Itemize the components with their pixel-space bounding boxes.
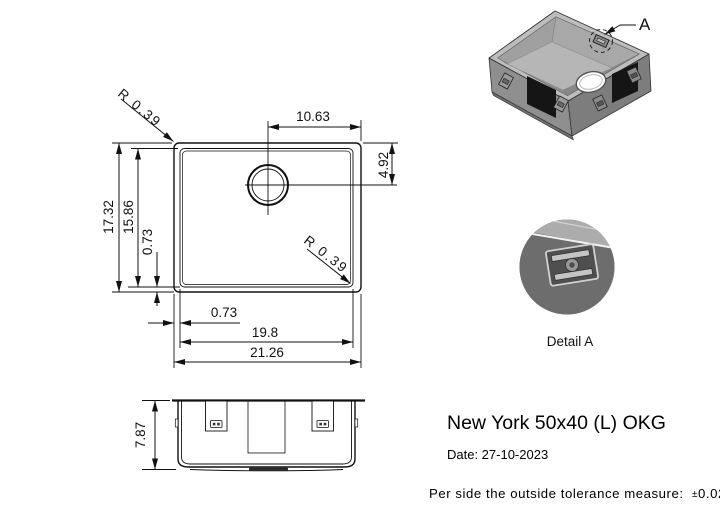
dim-front-height: 7.87 (133, 422, 148, 448)
dim-inner-height: 15.86 (121, 200, 136, 234)
center-pad-outline (248, 401, 285, 453)
iso-view: A (489, 11, 651, 140)
tolerance-label: Per side the outside tolerance measure: (429, 486, 684, 501)
detail-view: Detail A (490, 203, 620, 349)
dim-bottom-offset: 0.73 (140, 229, 155, 255)
detail-marker-label: A (639, 15, 651, 34)
sink-basin-edge (183, 151, 351, 285)
dim-drain-from-right: 10.63 (296, 109, 330, 124)
dim-outer-width: 21.26 (250, 345, 284, 360)
dim-drain-from-top: 4.92 (376, 152, 391, 178)
top-view: 10.63 4.92 17.32 15.86 0.73 0.73 19.8 21… (101, 86, 398, 368)
side-clip-left (175, 419, 178, 427)
front-view: 7.87 (133, 401, 365, 472)
drain-circle (245, 121, 397, 215)
drain-strip (249, 468, 288, 471)
clip-left (206, 401, 228, 431)
title-block: New York 50x40 (L) OKG Date: 27-10-2023 (447, 413, 717, 462)
radius-label-top-left: R 0.39 (115, 86, 164, 131)
drawing-sheet: 10.63 4.92 17.32 15.86 0.73 0.73 19.8 21… (0, 0, 720, 509)
radius-label-bottom-right: R 0.39 (301, 233, 351, 277)
dim-left-offset: 0.73 (211, 305, 237, 320)
side-clip-right (355, 419, 358, 427)
tolerance-value: 0.02 inch (698, 486, 720, 501)
dimension-lines (119, 99, 392, 362)
detail-caption: Detail A (547, 334, 594, 349)
tolerance-note: Per side the outside tolerance measure: … (429, 486, 720, 501)
drawing-date: Date: 27-10-2023 (447, 447, 717, 462)
dim-inner-width: 19.8 (252, 325, 278, 340)
clip-right (312, 401, 334, 431)
detail-clip-icon (546, 244, 599, 286)
product-name: New York 50x40 (L) OKG (447, 413, 717, 434)
dim-outer-height: 17.32 (101, 200, 116, 234)
